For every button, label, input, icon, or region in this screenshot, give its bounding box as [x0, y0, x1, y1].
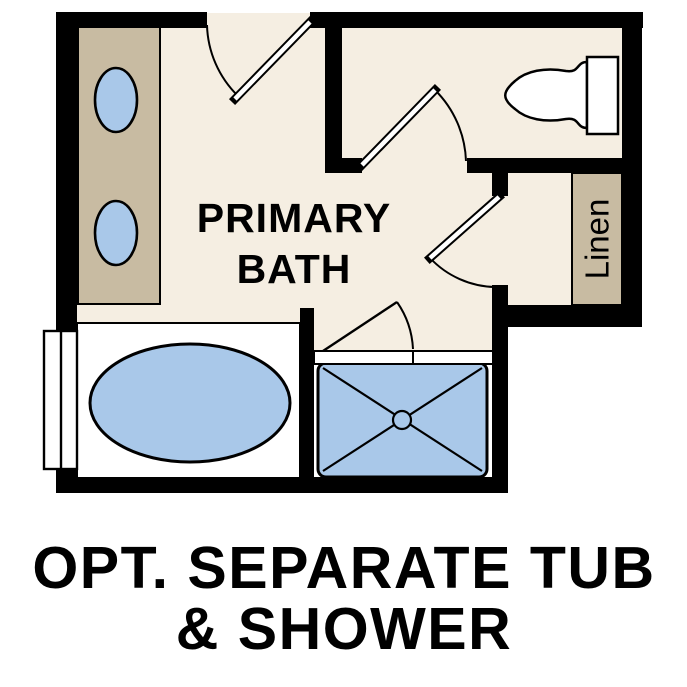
sink-basin-top — [95, 68, 137, 132]
bathtub — [90, 344, 290, 462]
sink-basin-bottom — [95, 201, 137, 265]
floor-plan: Linen — [0, 0, 687, 687]
linen-closet: Linen — [572, 173, 622, 305]
wall-linen-bottom — [492, 305, 642, 327]
floor-linen-opening — [493, 196, 507, 285]
window — [44, 331, 77, 469]
shower-glass-panel — [314, 351, 493, 364]
linen-label: Linen — [579, 199, 616, 280]
wall-shower-right — [492, 285, 508, 480]
caption-line1: OPT. SEPARATE TUB — [32, 535, 655, 601]
toilet-tank — [587, 57, 618, 134]
shower-drain — [393, 411, 411, 429]
wall-top-right — [310, 12, 643, 28]
shower-glass — [314, 351, 493, 364]
shower — [318, 363, 487, 477]
wall-bottom — [56, 477, 508, 493]
caption-line2: & SHOWER — [176, 596, 513, 662]
floor-wc-opening — [362, 158, 467, 173]
room-label-line1: PRIMARY — [197, 195, 392, 241]
floor-entry-opening — [207, 13, 310, 28]
wall-wc-linen-divider — [467, 158, 642, 173]
wall-top-left — [56, 12, 207, 28]
wall-tub-shower-divider — [300, 308, 314, 480]
room-label-line2: BATH — [237, 246, 352, 292]
wall-wc-left — [325, 12, 342, 173]
vanity — [78, 27, 160, 304]
bathtub-basin — [90, 344, 290, 462]
